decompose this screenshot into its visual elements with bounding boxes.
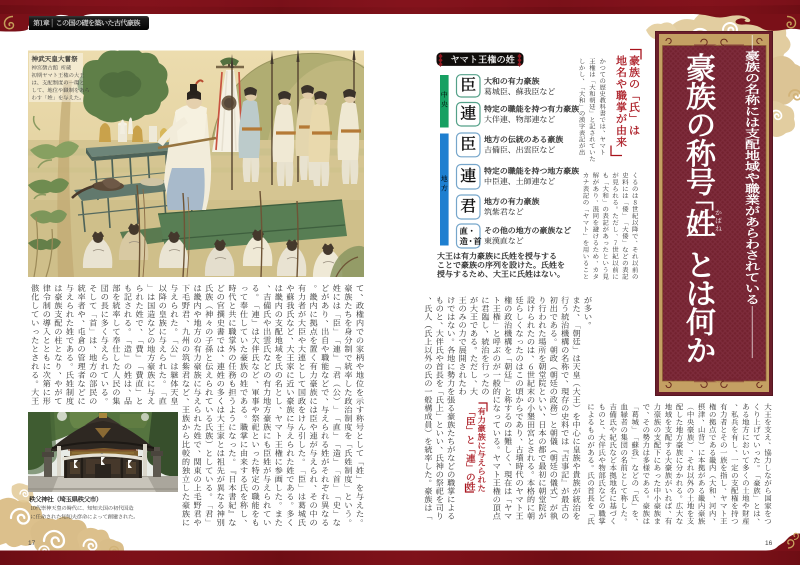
svg-text:16: 16 [765, 540, 773, 547]
svg-text:17: 17 [28, 540, 36, 547]
